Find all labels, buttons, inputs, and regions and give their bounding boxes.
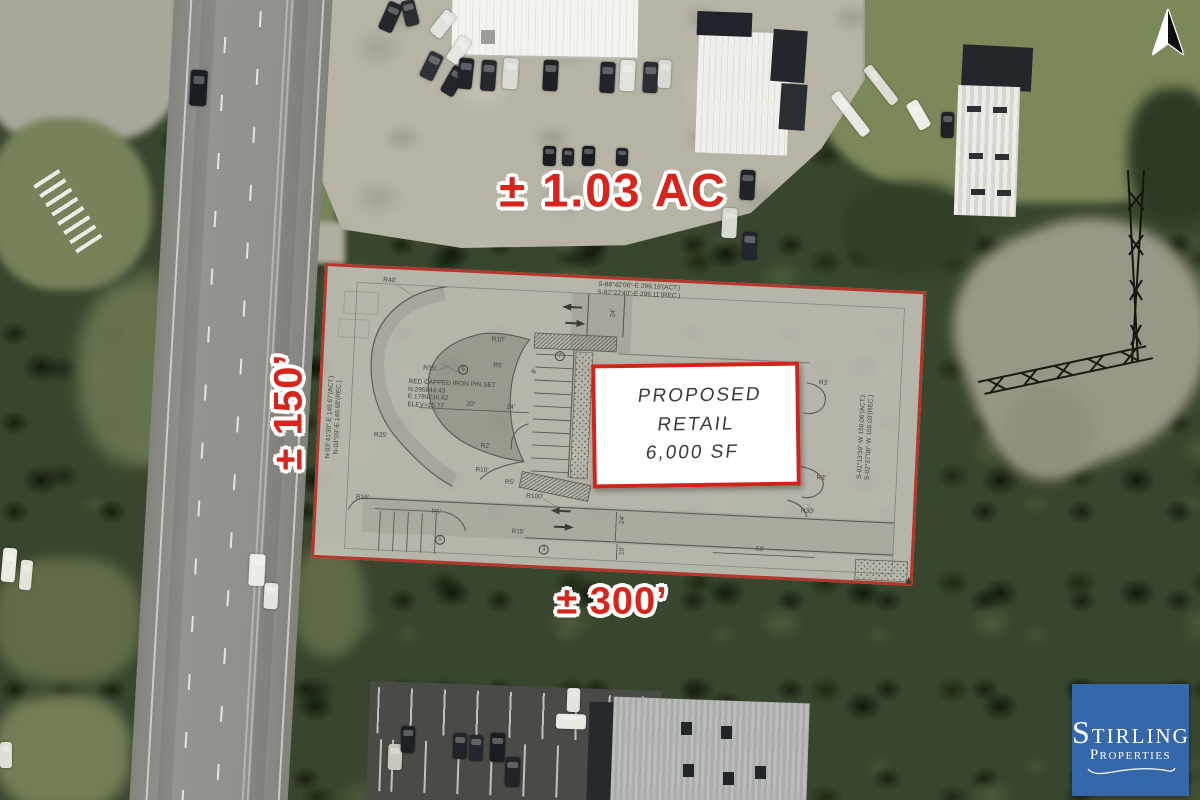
car bbox=[453, 733, 468, 759]
depth-dimension-label: ± 300’ bbox=[556, 581, 667, 624]
car bbox=[657, 60, 671, 89]
plan-dimension-label: R3' bbox=[816, 474, 826, 481]
plan-dimension-label: R5' bbox=[431, 508, 441, 515]
car bbox=[642, 62, 659, 94]
frontage-dimension-label: ± 150’ bbox=[267, 354, 312, 471]
car bbox=[739, 170, 756, 201]
warehouse-roof bbox=[451, 0, 638, 60]
acreage-label: ± 1.03 AC bbox=[499, 163, 727, 218]
car bbox=[189, 70, 208, 107]
logo-swash bbox=[1085, 766, 1177, 776]
rooftop-unit bbox=[683, 764, 694, 777]
plan-dimension-label: 24' bbox=[610, 309, 617, 318]
dark-roof-section bbox=[778, 83, 807, 131]
plan-dimension-label: 24' bbox=[506, 404, 515, 411]
plan-dimension-label: R25' bbox=[374, 432, 387, 440]
car bbox=[456, 57, 474, 89]
truck bbox=[1, 547, 18, 582]
plan-dimension-label: 10' bbox=[618, 546, 625, 555]
rooftop-unit bbox=[681, 722, 692, 735]
car bbox=[619, 60, 636, 92]
car bbox=[556, 713, 587, 729]
roof-vent bbox=[967, 106, 981, 112]
car bbox=[502, 58, 519, 90]
rooftop-unit bbox=[481, 30, 495, 44]
logo-word-stirling: STIRLING bbox=[1072, 714, 1189, 751]
dark-roof-section bbox=[697, 11, 753, 37]
plan-dimension-label: R5' bbox=[505, 479, 515, 486]
car bbox=[263, 583, 278, 610]
plan-dimension-label: R5' bbox=[493, 362, 503, 369]
car bbox=[504, 757, 520, 788]
plan-dimension-label: 24' bbox=[619, 515, 626, 524]
proposed-retail-box: PROPOSED RETAIL 6,000 SF bbox=[591, 362, 801, 489]
plan-dimension-label: R35' bbox=[423, 365, 436, 373]
car bbox=[480, 60, 497, 92]
truck bbox=[0, 742, 12, 768]
plan-dimension-label: R15' bbox=[511, 528, 524, 536]
plan-dimension-label: R3' bbox=[819, 379, 829, 386]
car bbox=[401, 726, 416, 753]
plan-dimension-label: R100' bbox=[526, 493, 543, 501]
plan-dimension-label: 20' bbox=[466, 401, 475, 408]
plan-dimension-label: R30' bbox=[801, 508, 814, 516]
car bbox=[741, 232, 757, 261]
grass-patch bbox=[0, 695, 130, 800]
car bbox=[248, 554, 266, 587]
car bbox=[469, 735, 484, 761]
plan-dimension-label: R10' bbox=[491, 336, 504, 344]
plan-dimension-label: R2' bbox=[480, 443, 490, 450]
aerial-site-map: S-88°42'06"-E 299.19'(ACT.) S-87°22'40"-… bbox=[0, 0, 1200, 800]
plan-dimension-label: R40' bbox=[383, 277, 396, 285]
proposed-retail-line1: PROPOSED RETAIL bbox=[594, 381, 801, 441]
dark-roof-section bbox=[770, 29, 808, 83]
office-building-roof bbox=[610, 697, 810, 800]
plan-dimension-label: R15' bbox=[356, 494, 369, 502]
car bbox=[567, 688, 581, 712]
car bbox=[489, 733, 505, 763]
truck bbox=[941, 112, 955, 138]
proposed-retail-line2: 6,000 SF bbox=[591, 438, 795, 469]
plan-dimension-label: 50' bbox=[756, 546, 765, 553]
car bbox=[599, 62, 616, 94]
rooftop-unit bbox=[721, 726, 732, 739]
stirling-properties-logo: STIRLING PROPERTIES bbox=[1072, 684, 1189, 796]
lattice-tower bbox=[960, 150, 1200, 420]
rooftop-unit bbox=[723, 772, 734, 785]
car bbox=[542, 60, 559, 92]
iron-pin-note: RED CAPPED IRON PIN SET N:295844.43 E:17… bbox=[407, 378, 496, 412]
roof-vent bbox=[993, 107, 1007, 113]
north-arrow-icon bbox=[1150, 8, 1186, 58]
plan-dimension-label: R10' bbox=[475, 466, 488, 474]
rooftop-unit bbox=[755, 766, 766, 779]
